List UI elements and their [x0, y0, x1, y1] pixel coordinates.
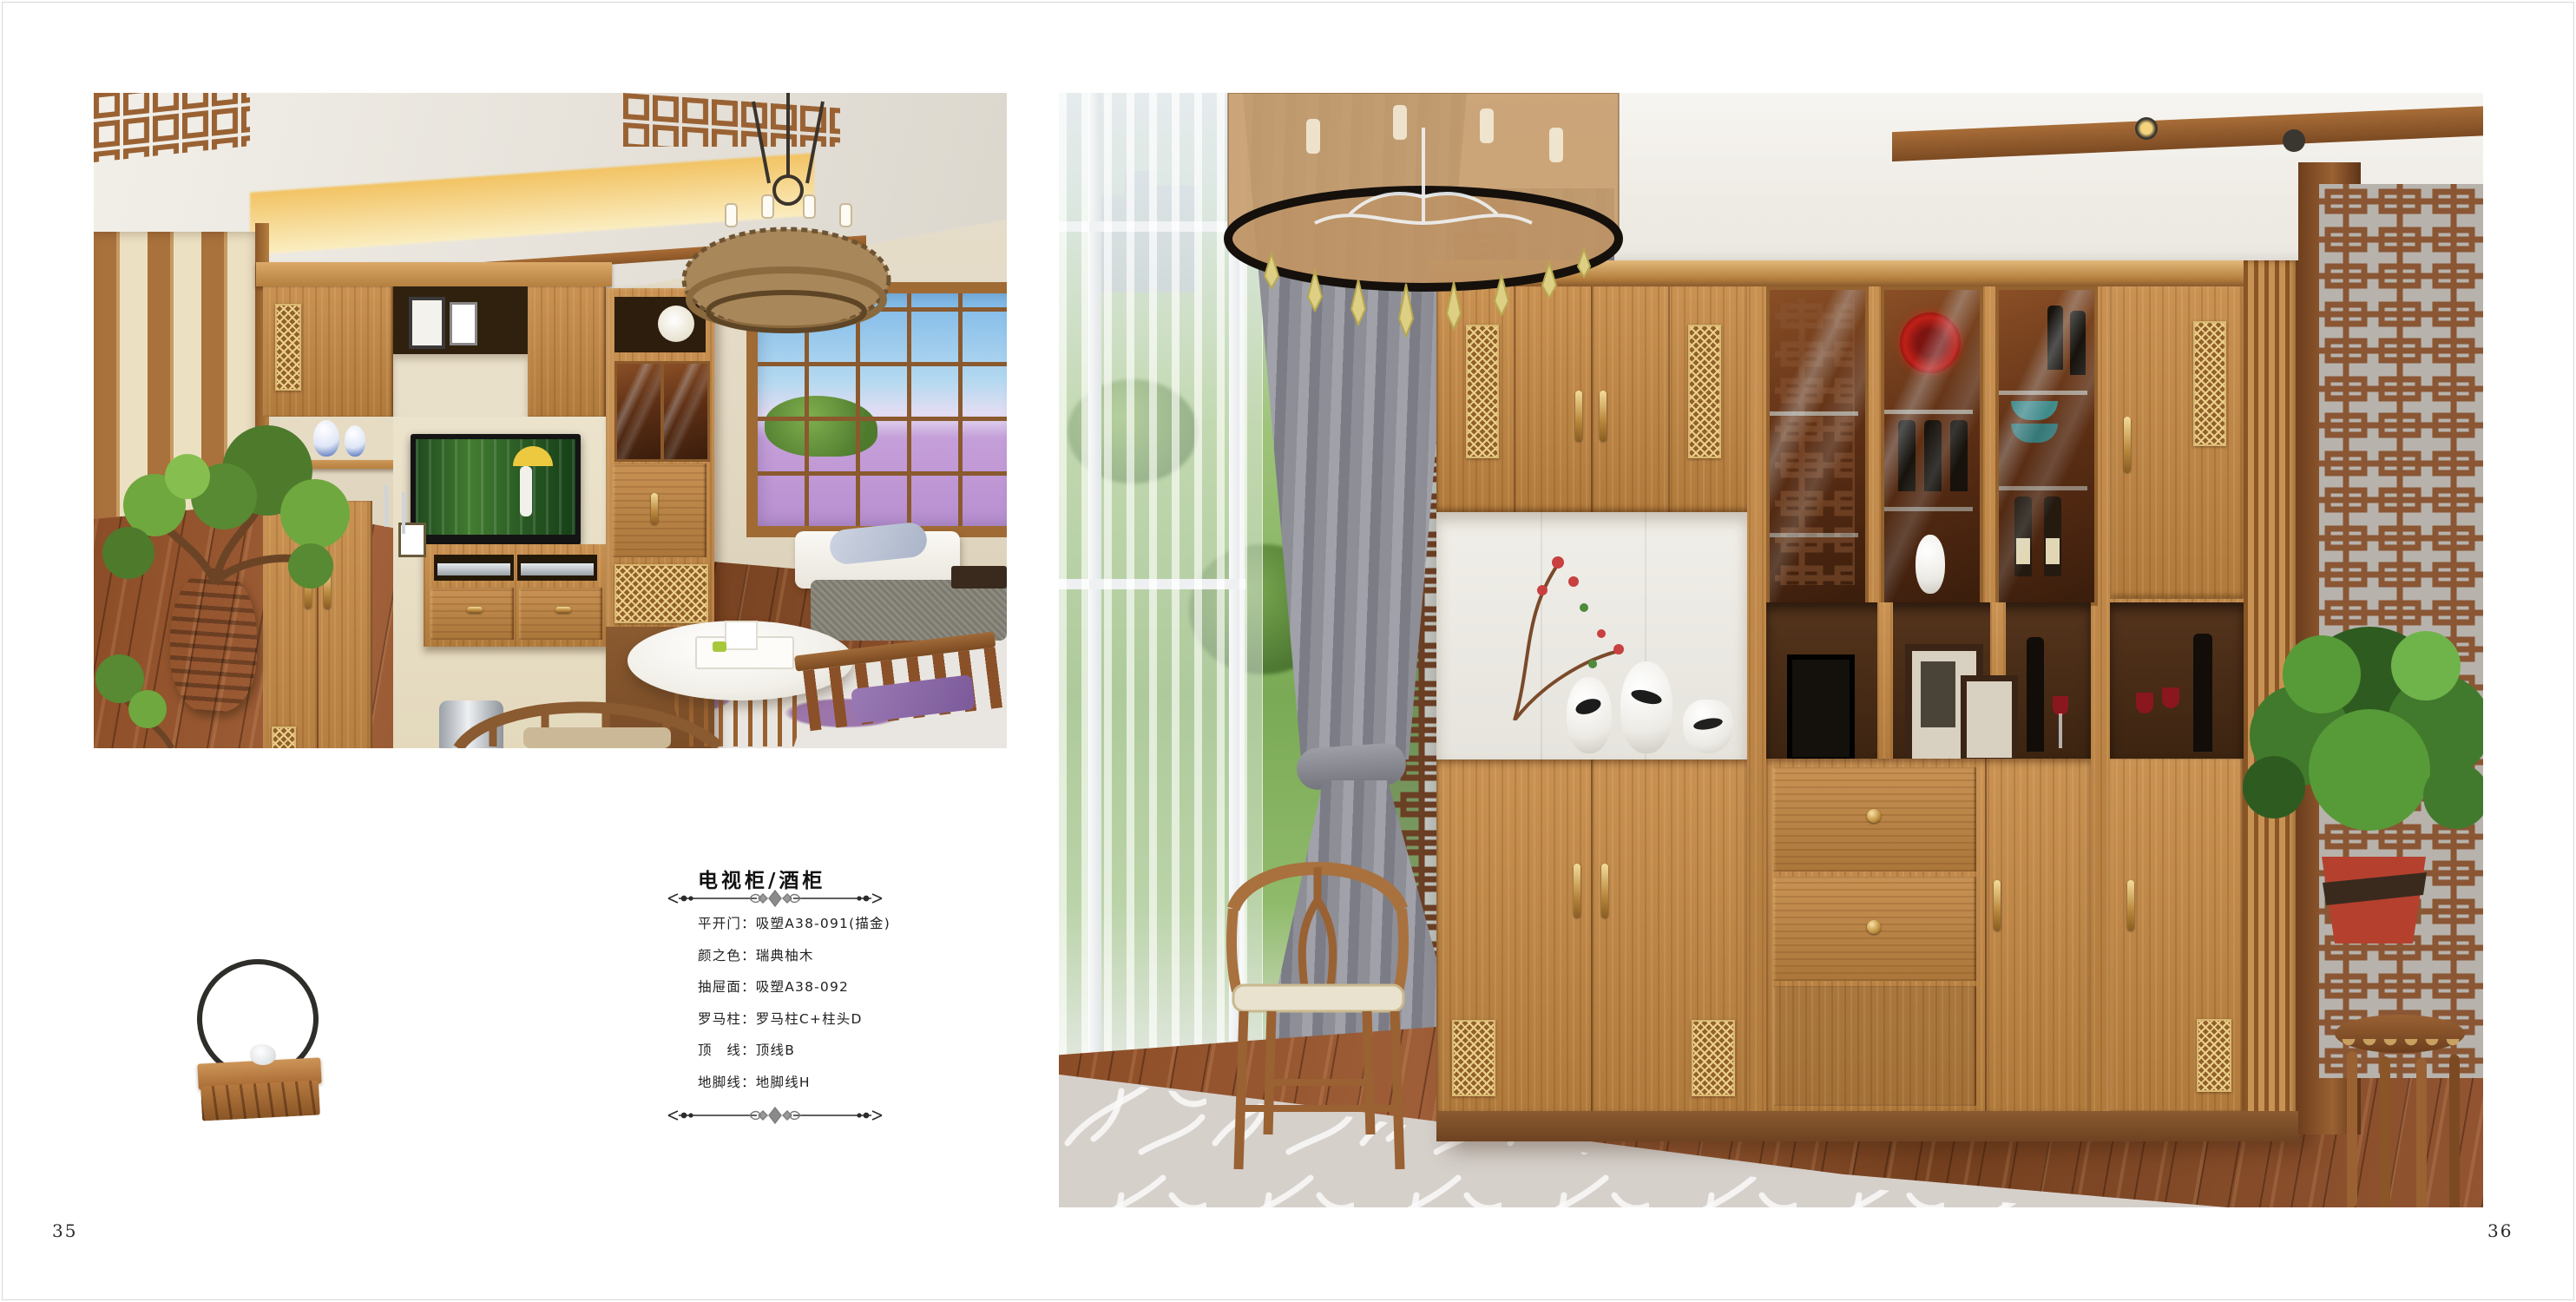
media-player — [437, 563, 510, 575]
upper-open-shelf — [393, 354, 528, 417]
spec-list: 平开门：吸塑A38-091(描金) 颜之色：瑞典柚木 抽屉面：吸塑A38-092… — [698, 908, 958, 1099]
open-cubby — [2110, 602, 2244, 759]
rattan-chandelier — [649, 93, 927, 353]
spec-line: 顶 线：顶线B — [698, 1035, 958, 1067]
spec-line: 罗马柱：罗马柱C+柱头D — [698, 1003, 958, 1036]
foreground-armchair — [441, 670, 736, 748]
wishbone-chair — [1218, 848, 1417, 1187]
spec-line: 平开门：吸塑A38-091(描金) — [698, 908, 958, 940]
open-niche — [1436, 512, 1747, 759]
white-flower — [250, 1044, 276, 1065]
divider-ornament-bottom — [667, 1106, 884, 1125]
tv — [411, 434, 581, 545]
lattice-inlay — [1692, 1020, 1735, 1096]
wine-glass — [2053, 696, 2068, 715]
bonsai-plant — [94, 423, 354, 631]
blossom-branch — [1462, 529, 1636, 720]
door-seam — [1591, 759, 1593, 1111]
sideboard-left — [1436, 759, 1747, 1111]
lattice-inlay — [272, 727, 296, 748]
door-handle — [651, 493, 658, 524]
wine-glasses — [2136, 693, 2153, 713]
open-cubby-row — [1766, 602, 2091, 759]
catalog-spread: 电视柜/酒柜 平开门：吸塑A38-091(描金) 颜之色：瑞典柚木 抽屉面：吸塑… — [0, 0, 2576, 1302]
lower-door-right — [2110, 759, 2244, 1111]
tv-figure — [520, 466, 532, 516]
drawer-knob — [1867, 920, 1881, 934]
plinth — [1436, 1111, 2300, 1141]
candlesticks — [384, 485, 388, 527]
door-handle — [2124, 417, 2131, 472]
lattice-inlay — [2197, 1019, 2231, 1092]
lower-cabinets-mid — [1766, 759, 2091, 1111]
left-room-photo — [94, 93, 1007, 748]
page-number-left: 35 — [52, 1220, 77, 1241]
divider-ornament-top — [667, 889, 884, 908]
cornice — [256, 262, 612, 286]
lattice-inlay — [275, 304, 301, 391]
right-room-photo — [1059, 93, 2483, 1207]
decor-leaf — [713, 641, 726, 652]
wine-cabinet — [1436, 260, 2300, 1141]
glass-door-column — [1766, 286, 1869, 606]
upper-cabinet-right — [528, 286, 606, 417]
door-handle — [1601, 864, 1608, 917]
cabinet-door — [613, 464, 706, 557]
page-number-right: 36 — [2487, 1220, 2513, 1241]
shelf-photo-frame — [409, 297, 445, 349]
drawer — [430, 588, 514, 640]
glass-door — [614, 361, 663, 462]
spec-line: 颜之色：瑞典柚木 — [698, 940, 958, 972]
wood-tray — [951, 566, 1007, 589]
decor-item-photo — [182, 950, 338, 1133]
door-seam — [1985, 759, 1987, 1111]
door-handle — [1994, 880, 2001, 930]
shelf-photo-frame — [450, 302, 477, 345]
glass-door-column — [1995, 286, 2098, 606]
tray-box — [725, 621, 758, 650]
door-handle — [1600, 391, 1607, 441]
door-handle — [1575, 391, 1582, 441]
lattice-inlay — [1688, 325, 1721, 458]
lattice-inlay — [2193, 321, 2226, 446]
spec-line: 抽屉面：吸塑A38-092 — [698, 971, 958, 1003]
lattice-inlay — [1452, 1020, 1495, 1096]
drawer-handle — [467, 607, 483, 613]
white-vase — [1567, 677, 1612, 753]
wine-bottle — [2193, 634, 2212, 752]
cabinet-door — [1773, 986, 1976, 1106]
glass-door-column — [1881, 286, 1983, 606]
tv-screen — [416, 439, 575, 535]
potted-plant — [2239, 596, 2483, 961]
small-bonsai — [94, 614, 198, 748]
picture-frame — [1961, 675, 2018, 764]
wine-bottle — [2027, 637, 2044, 752]
crystal-chandelier — [1219, 93, 1627, 353]
glass-door — [661, 361, 710, 462]
tv-stand — [424, 544, 610, 647]
wood-base-bottom — [200, 1080, 320, 1121]
stand-bamboo-legs — [2347, 1051, 2357, 1207]
drawer — [519, 588, 602, 640]
black-frame-decor — [1787, 654, 1855, 762]
ceiling-lattice-corner — [94, 93, 250, 162]
white-bowl — [1683, 700, 1733, 753]
cubby-divider — [1877, 602, 1893, 759]
media-player — [521, 563, 594, 575]
tall-door-right — [2110, 286, 2244, 599]
drawer-knob — [1867, 809, 1881, 823]
spec-line: 地脚线：地脚线H — [698, 1067, 958, 1099]
drawer-handle — [555, 607, 571, 613]
white-vase — [1620, 661, 1672, 753]
door-handle — [2127, 880, 2134, 930]
photo-frame — [398, 523, 426, 557]
door-handle — [1574, 864, 1580, 917]
ceiling-spotlights — [2135, 117, 2158, 140]
